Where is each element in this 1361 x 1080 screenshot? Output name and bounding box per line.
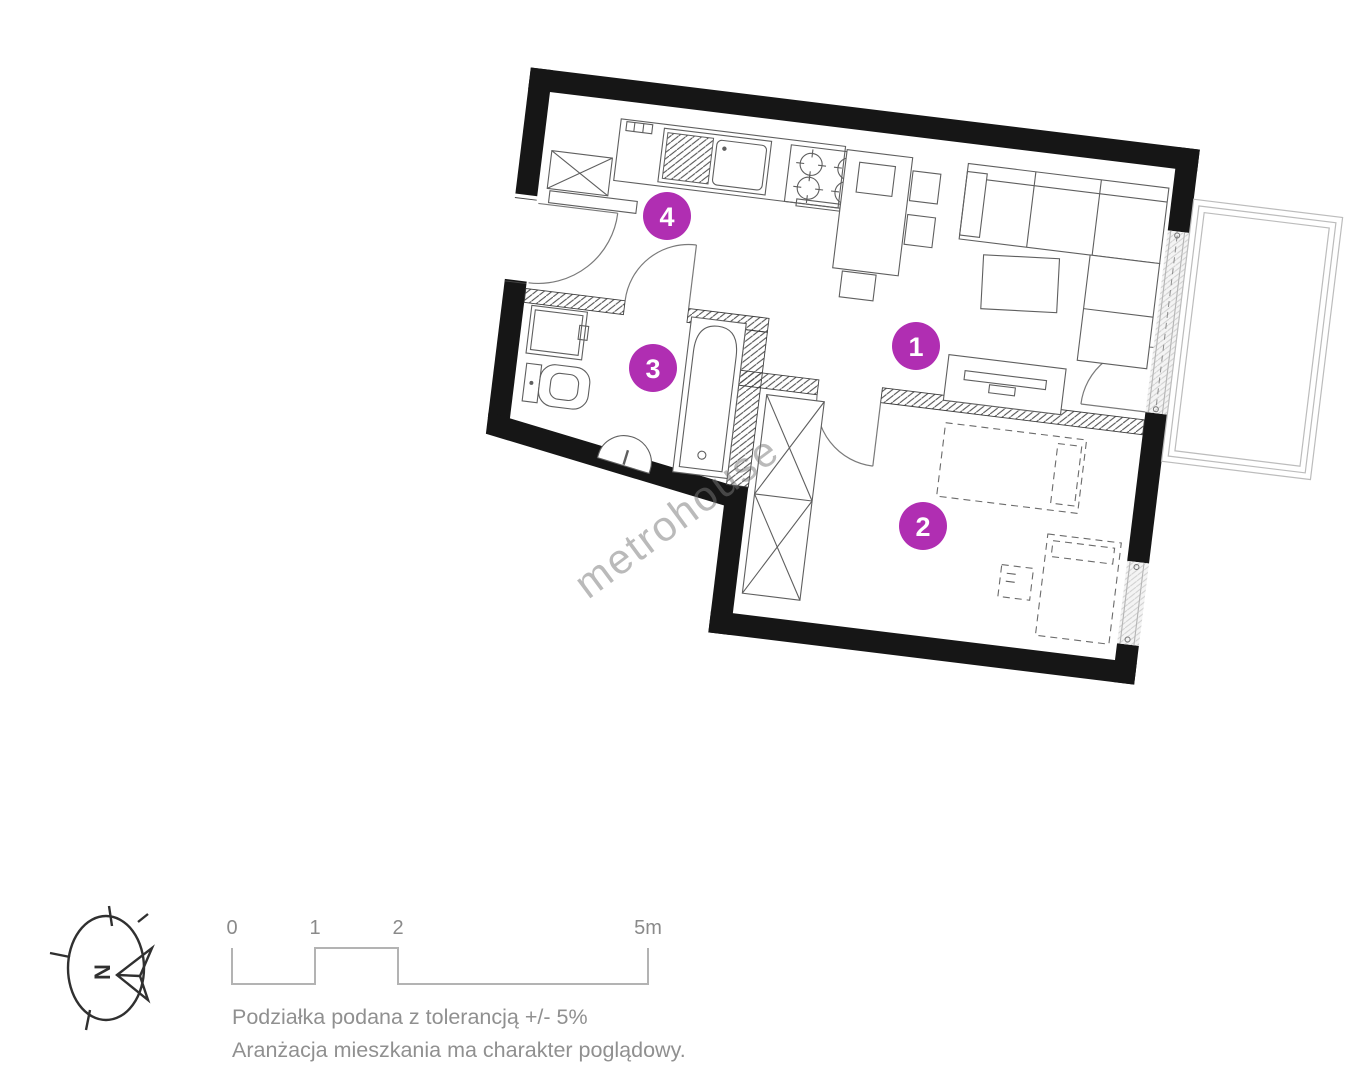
compass-north-label: N xyxy=(90,964,115,980)
wall-east-mid xyxy=(1127,412,1167,564)
scale-bar: 0 1 2 5m xyxy=(226,917,661,984)
scale-tick-1: 1 xyxy=(309,917,320,939)
north-arrow xyxy=(117,948,152,1000)
apartment-plan xyxy=(465,67,1349,702)
coffee-table xyxy=(981,255,1060,313)
balcony xyxy=(1162,199,1343,479)
drainboard xyxy=(662,133,713,184)
balcony-door-leaf xyxy=(1081,404,1146,412)
chair xyxy=(904,215,935,248)
dining-table xyxy=(829,150,942,308)
pillow xyxy=(1051,444,1082,506)
tolerance-note: Podziałka podana z tolerancją +/- 5% xyxy=(232,1005,588,1029)
room-label-3: 3 xyxy=(645,354,660,384)
room-label-2: 2 xyxy=(915,512,930,542)
floorplan-canvas: 1 2 3 4 metrohouse N 0 1 2 5m xyxy=(0,0,1361,1080)
scale-tick-0: 0 xyxy=(226,917,237,939)
scale-tick-2: 2 xyxy=(392,917,403,939)
floorplan-page: 1 2 3 4 metrohouse N 0 1 2 5m xyxy=(0,0,1361,1080)
wall-south xyxy=(708,610,1136,684)
entry-door-leaf xyxy=(538,203,617,213)
scale-tick-5m: 5m xyxy=(634,917,662,939)
wall-west-top xyxy=(515,67,552,196)
room-badge-1: 1 xyxy=(892,322,940,370)
nightstand xyxy=(998,565,1034,601)
sofa-chaise xyxy=(1077,255,1159,369)
compass-icon: N xyxy=(50,906,152,1030)
pillow xyxy=(1051,541,1114,564)
room-badge-4: 4 xyxy=(643,192,691,240)
arrangement-note: Aranżacja mieszkania ma charakter pogląd… xyxy=(232,1038,686,1062)
room-label-1: 1 xyxy=(908,332,923,362)
bathroom-door-leaf xyxy=(689,245,697,309)
washing-machine xyxy=(526,305,590,360)
room-label-4: 4 xyxy=(659,202,674,232)
room-badge-3: 3 xyxy=(629,344,677,392)
chair xyxy=(909,171,940,204)
chair xyxy=(839,271,876,301)
room-badge-2: 2 xyxy=(899,502,947,550)
bathroom-door-swing xyxy=(625,237,696,308)
bed-2 xyxy=(1035,534,1121,644)
legend: N 0 1 2 5m Podziałka podana z tolerancją… xyxy=(50,906,686,1062)
entry-door-swing xyxy=(529,203,618,292)
wall-west-mid xyxy=(488,279,527,421)
toilet xyxy=(522,361,592,411)
bed-1 xyxy=(937,423,1087,514)
bedroom-door-leaf xyxy=(873,403,881,467)
